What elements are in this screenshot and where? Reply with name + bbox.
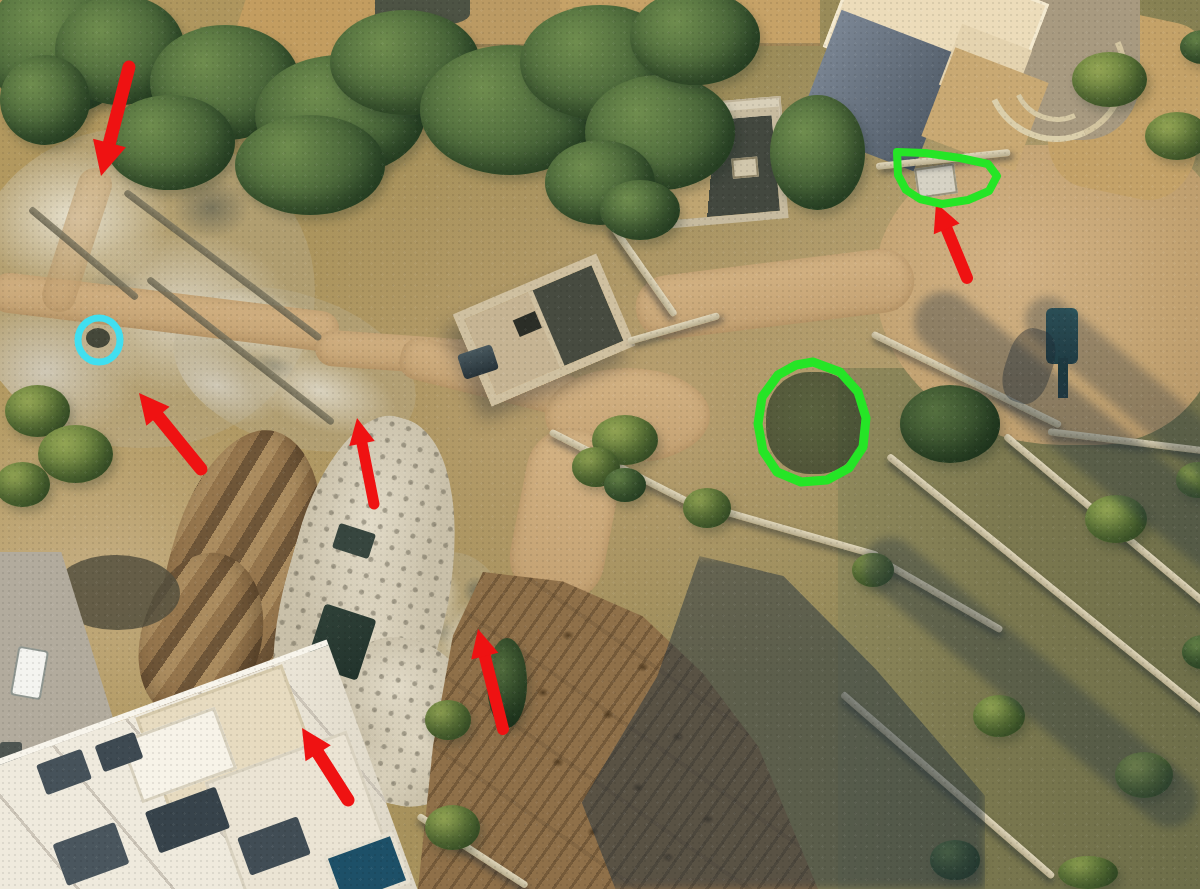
red-arrow-southwest-upleft [302,728,348,800]
cyan-circle-rock-hole [78,318,120,362]
green-outline-structure-ne [897,152,997,204]
green-circle-scrub-mound [758,362,866,482]
annotation-layer [0,0,1200,889]
red-arrow-northeast-upleft [934,203,967,278]
red-arrow-northwest [93,67,129,176]
red-arrow-center-up [349,418,375,504]
red-arrow-south-up [471,629,503,729]
aerial-photo [0,0,1200,889]
red-arrow-west-upleft [139,393,201,469]
